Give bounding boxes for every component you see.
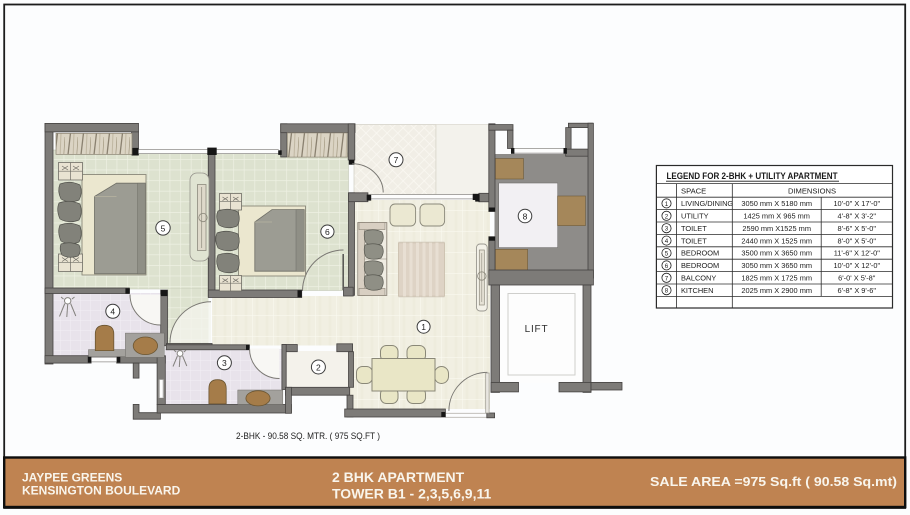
svg-text:2 BHK APARTMENT: 2 BHK APARTMENT xyxy=(332,469,465,485)
svg-text:1: 1 xyxy=(665,201,669,208)
svg-text:6: 6 xyxy=(325,227,330,237)
svg-text:LEGEND FOR 2-BHK + UTILITY APA: LEGEND FOR 2-BHK + UTILITY APARTMENT xyxy=(667,171,838,182)
svg-text:KITCHEN: KITCHEN xyxy=(681,286,713,295)
svg-text:7: 7 xyxy=(394,155,399,165)
svg-text:8: 8 xyxy=(523,211,528,221)
svg-text:1425 mm X 965 mm: 1425 mm X 965 mm xyxy=(743,212,810,221)
svg-text:1: 1 xyxy=(421,322,426,332)
svg-text:6'-0' X 5'-8": 6'-0' X 5'-8" xyxy=(838,274,876,283)
svg-text:KENSINGTON BOULEVARD: KENSINGTON BOULEVARD xyxy=(22,484,181,498)
svg-text:2-BHK - 90.58 SQ. MTR. ( 975: 2-BHK - 90.58 SQ. MTR. ( 975 SQ.FT ) xyxy=(236,431,380,442)
svg-text:DIMENSIONS: DIMENSIONS xyxy=(788,187,836,196)
svg-text:SALE AREA =975 Sq.ft ( 90.58 S: SALE AREA =975 Sq.ft ( 90.58 Sq.mt) xyxy=(650,474,897,489)
svg-text:2590 mm X1525 mm: 2590 mm X1525 mm xyxy=(742,224,811,233)
svg-text:11'-6" X 12'-0": 11'-6" X 12'-0" xyxy=(834,249,881,258)
svg-text:1825 mm X 1725 mm: 1825 mm X 1725 mm xyxy=(741,274,812,283)
svg-text:LIFT: LIFT xyxy=(525,324,549,335)
svg-text:7: 7 xyxy=(665,275,669,282)
svg-text:SPACE: SPACE xyxy=(681,187,706,196)
svg-text:5: 5 xyxy=(161,223,166,233)
svg-text:JAYPEE GREENS: JAYPEE GREENS xyxy=(22,471,122,485)
svg-text:2: 2 xyxy=(665,213,669,220)
svg-text:2440 mm X 1525 mm: 2440 mm X 1525 mm xyxy=(741,236,812,245)
svg-text:2025 mm X 2900 mm: 2025 mm X 2900 mm xyxy=(741,286,812,295)
svg-text:6'-8" X 9'-6": 6'-8" X 9'-6" xyxy=(838,286,877,295)
svg-text:3: 3 xyxy=(222,358,227,368)
svg-text:8'-6" X 5'-0": 8'-6" X 5'-0" xyxy=(838,224,877,233)
svg-text:6: 6 xyxy=(665,263,669,270)
svg-text:3050 mm X 3650 mm: 3050 mm X 3650 mm xyxy=(741,261,812,270)
svg-text:4: 4 xyxy=(665,238,669,245)
svg-text:10'-0" X 17'-0": 10'-0" X 17'-0" xyxy=(833,199,880,208)
svg-text:8: 8 xyxy=(665,288,669,295)
svg-text:5: 5 xyxy=(665,251,669,258)
svg-text:3050 mm X 5180 mm: 3050 mm X 5180 mm xyxy=(741,199,812,208)
svg-text:3: 3 xyxy=(665,226,669,233)
svg-text:TOWER B1 - 2,3,5,6,9,11: TOWER B1 - 2,3,5,6,9,11 xyxy=(332,486,491,502)
svg-text:10'-0" X 12'-0": 10'-0" X 12'-0" xyxy=(833,261,880,270)
svg-text:BEDROOM: BEDROOM xyxy=(681,261,719,270)
svg-text:2: 2 xyxy=(316,362,321,372)
svg-text:TOILET: TOILET xyxy=(681,224,707,233)
svg-text:BALCONY: BALCONY xyxy=(681,274,716,283)
svg-text:8'-0" X 5'-0": 8'-0" X 5'-0" xyxy=(838,236,877,245)
svg-text:LIVING/DINING: LIVING/DINING xyxy=(681,199,733,208)
svg-text:4: 4 xyxy=(110,307,115,317)
svg-text:TOILET: TOILET xyxy=(681,236,707,245)
svg-text:BEDROOM: BEDROOM xyxy=(681,249,719,258)
svg-text:UTILITY: UTILITY xyxy=(681,212,709,221)
svg-text:3500 mm X 3650 mm: 3500 mm X 3650 mm xyxy=(741,249,812,258)
svg-text:4'-8" X 3'-2": 4'-8" X 3'-2" xyxy=(838,212,877,221)
